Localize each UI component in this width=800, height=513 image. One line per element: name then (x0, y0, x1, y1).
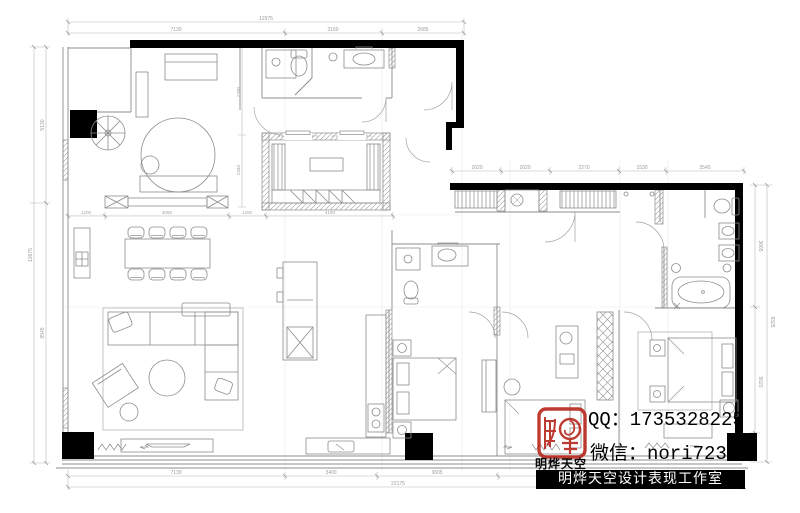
qq-contact: QQ：1735328225 (588, 404, 744, 431)
dim-label: 4050 (162, 210, 173, 215)
tv-cabinet (121, 439, 213, 452)
dim-label: 22175 (391, 481, 405, 487)
red-seal-stamp (537, 407, 587, 460)
dim-label: 2340 (236, 164, 241, 175)
piano-area (136, 54, 217, 192)
kitchen-counter (306, 315, 390, 454)
column (62, 432, 94, 459)
dim-label: 7130 (170, 470, 181, 476)
dim-label: 4160 (325, 210, 336, 215)
bedroom-2 (393, 340, 496, 438)
dim-label: 3665 (757, 240, 763, 251)
dim-label: 1620 (471, 165, 482, 171)
living-room (92, 303, 243, 452)
dim-label: 1620 (519, 165, 530, 171)
wardrobe-band (455, 190, 654, 212)
cabinet-row (105, 196, 228, 208)
wechat-contact: 微信：nori723 (590, 438, 727, 465)
dim-label: 3400 (325, 470, 336, 476)
hall-bathroom (396, 243, 468, 304)
floor-plan-svg: 12975 7130 3160 2685 1620 1620 2270 1530… (0, 0, 800, 513)
walk-in-closet (272, 144, 380, 203)
column (727, 433, 757, 461)
toilet (291, 50, 307, 76)
dim-label: 13675 (28, 248, 34, 262)
studio-banner: 明烨天空设计表现工作室 (536, 470, 745, 489)
column (405, 433, 433, 460)
structural-walls (62, 40, 757, 461)
dim-label: 3160 (327, 27, 338, 33)
coffee-table (149, 360, 185, 396)
column (70, 110, 97, 138)
furniture (74, 47, 739, 454)
dining-set (74, 227, 210, 280)
dim-label: 5130 (40, 119, 46, 130)
dim-label: 2270 (578, 165, 589, 171)
dim-label: 7130 (170, 27, 181, 33)
ottoman (120, 403, 138, 421)
bathtub (672, 277, 730, 309)
dim-label: 2685 (417, 27, 428, 33)
dim-label: 12975 (259, 16, 273, 22)
hatched-walls (63, 48, 667, 433)
kitchen-island (277, 262, 317, 360)
bathroom-top (266, 47, 384, 78)
floor-plan-page: 12975 7130 3160 2685 1620 1620 2270 1530… (0, 0, 800, 513)
armchair (92, 363, 138, 407)
dim-label: 8545 (40, 327, 46, 338)
spiral-stair (91, 116, 125, 150)
dim-label: 8325 (769, 316, 775, 327)
dim-label: 5020 (757, 376, 763, 387)
seal-icon (537, 407, 587, 460)
dim-label: 1200 (81, 210, 92, 215)
dim-label: 1530 (636, 165, 647, 171)
dim-label: 1200 (242, 210, 253, 215)
dim-label: 3605 (431, 470, 442, 476)
dim-label: 2545 (699, 165, 710, 171)
